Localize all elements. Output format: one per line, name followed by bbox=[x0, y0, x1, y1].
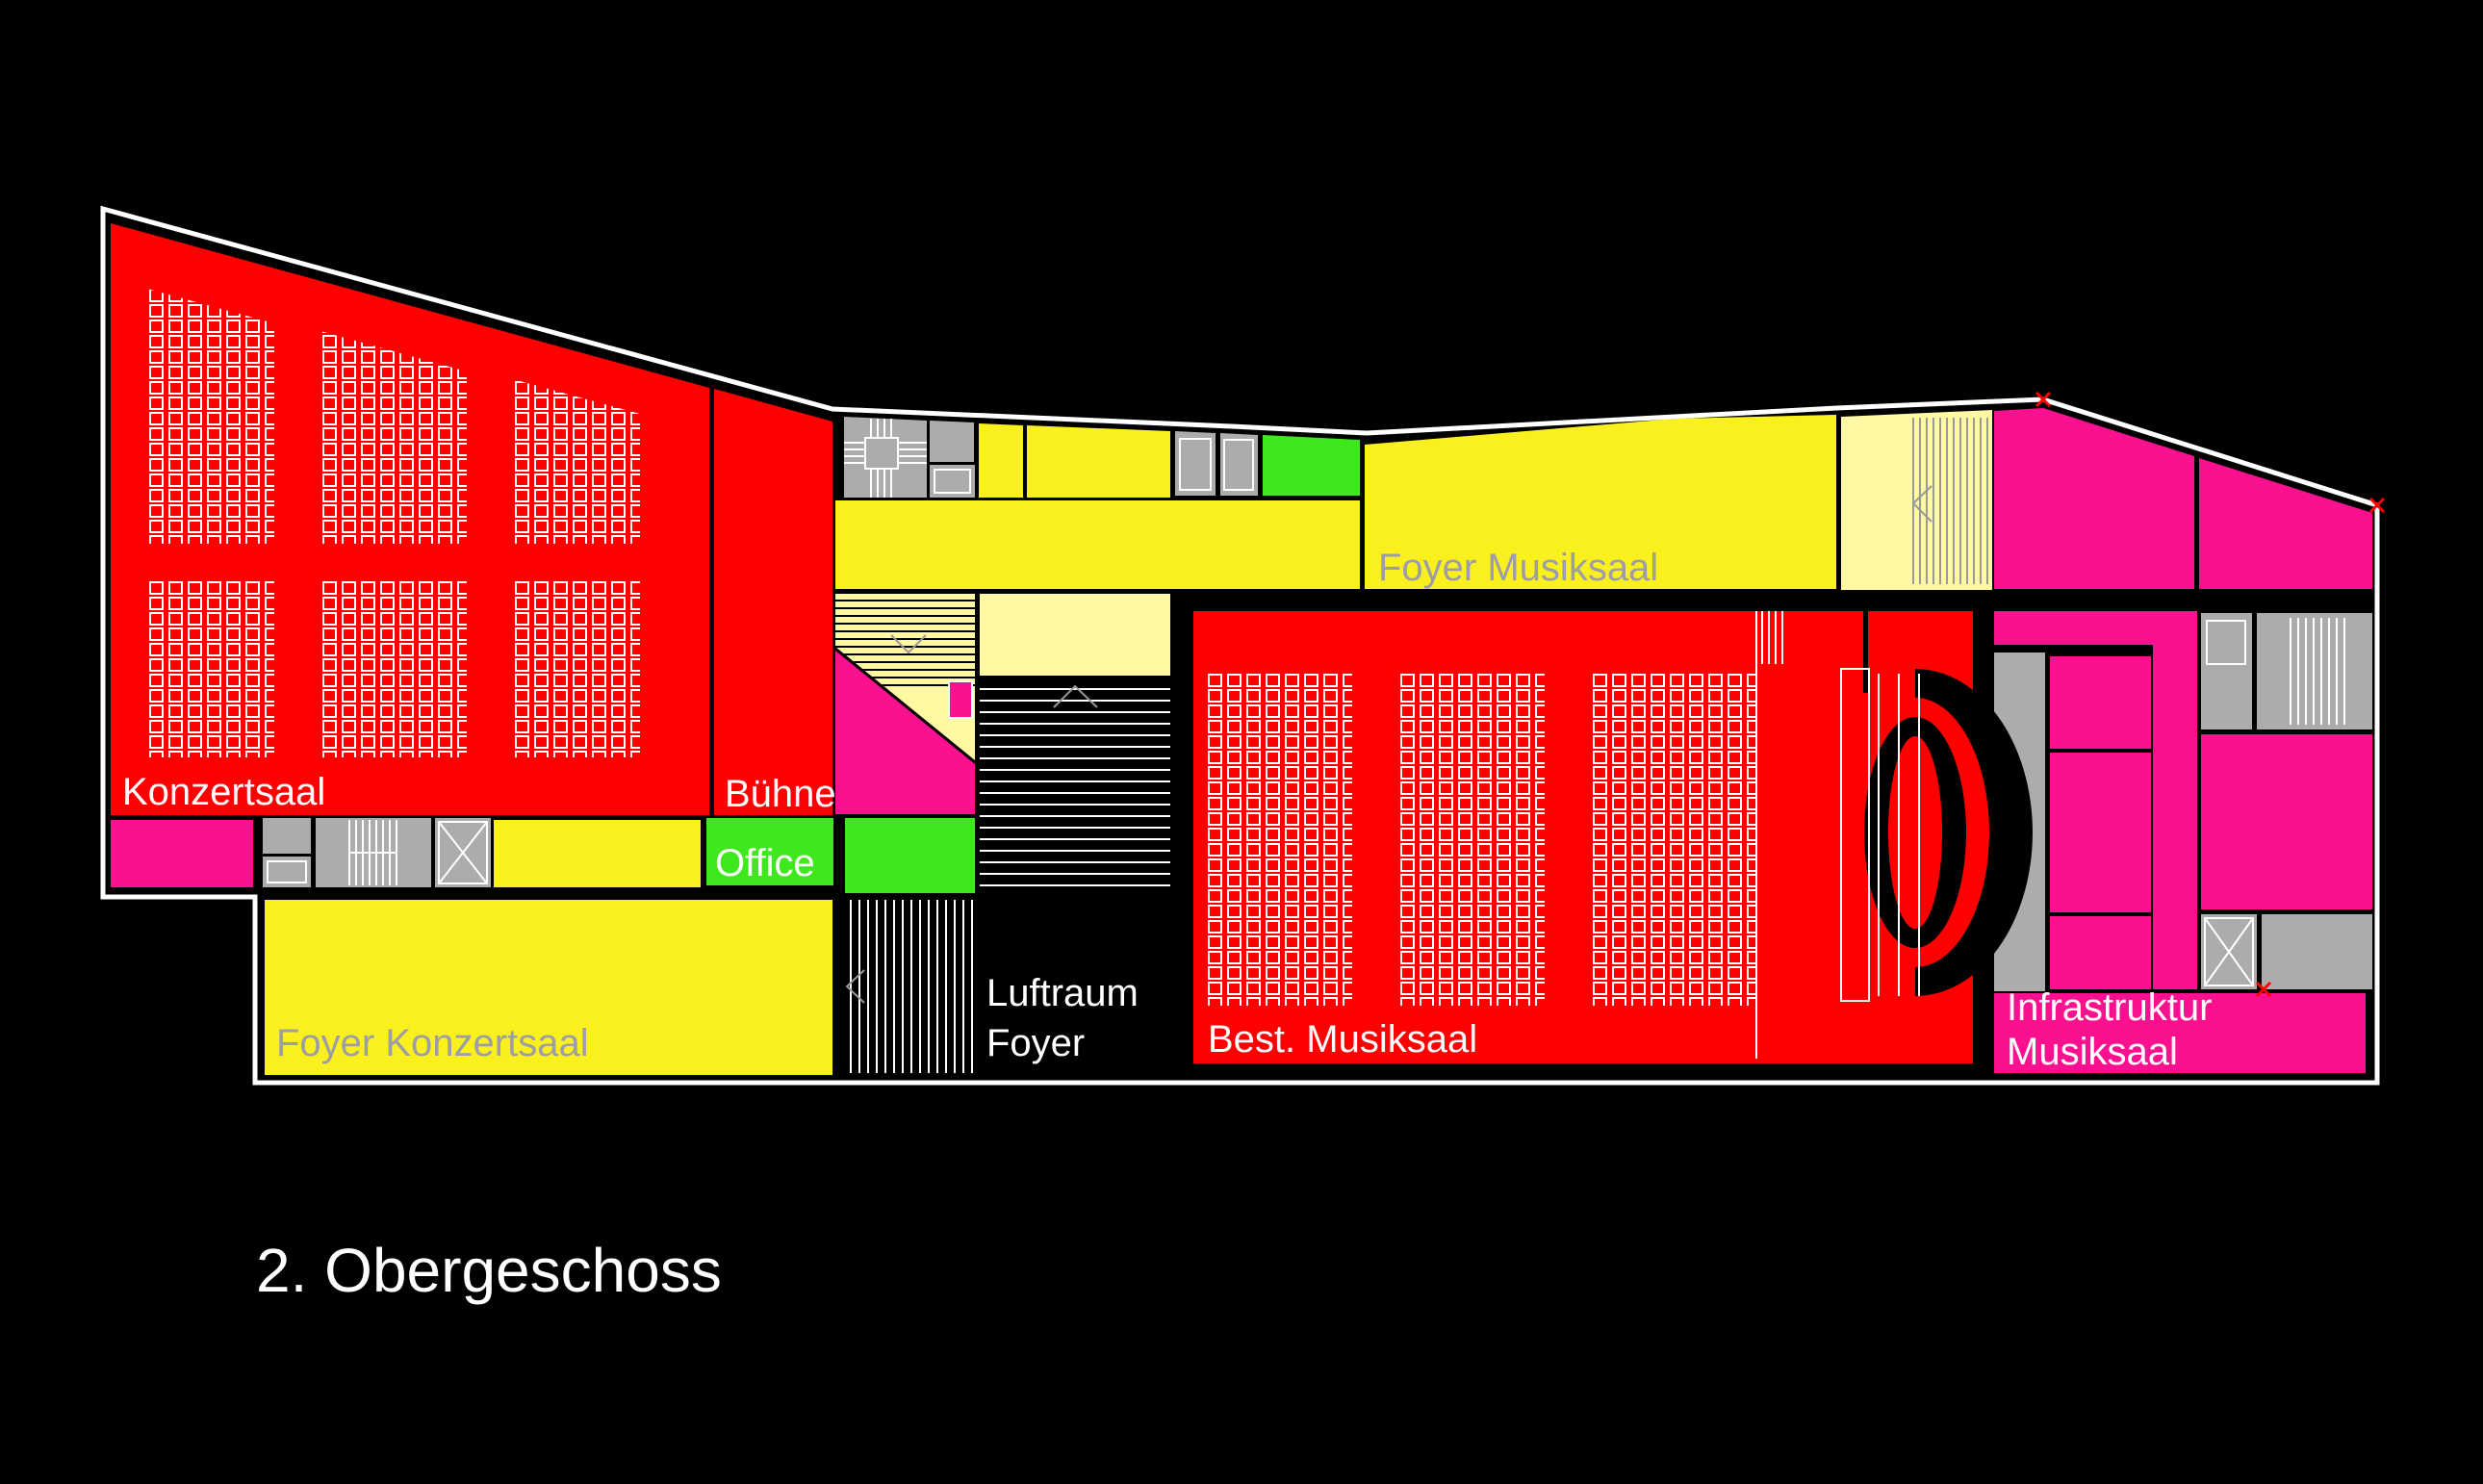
floorplan-svg: Konzertsaal Bühne Office bbox=[0, 0, 2483, 1484]
konzertsaal-room: Konzertsaal bbox=[111, 223, 709, 815]
foyer-konzertsaal-room: Foyer Konzertsaal bbox=[265, 900, 832, 1075]
floorplan-canvas: Konzertsaal Bühne Office bbox=[0, 0, 2483, 1484]
infrastruktur-label-2: Musiksaal bbox=[2007, 1031, 2178, 1073]
escalator-block bbox=[835, 594, 975, 893]
magenta-corridor bbox=[2153, 645, 2197, 989]
best-musiksaal-label: Best. Musiksaal bbox=[1208, 1018, 1477, 1061]
infrastruktur-wing: Infrastruktur Musiksaal bbox=[1994, 408, 2372, 1073]
foyer-konzertsaal-label: Foyer Konzertsaal bbox=[276, 1022, 589, 1064]
floor-title: 2. Obergeschoss bbox=[256, 1236, 722, 1305]
konzertsaal-seats bbox=[147, 289, 274, 544]
luftraum-label-2: Foyer bbox=[986, 1022, 1085, 1064]
yellow-room-a bbox=[979, 423, 1023, 498]
magenta-room-r2 bbox=[1994, 611, 2197, 645]
office-label: Office bbox=[715, 842, 815, 884]
yellow-room-strip bbox=[494, 820, 701, 887]
magenta-room-r1a bbox=[1994, 408, 2194, 589]
yellow-room-b bbox=[1027, 425, 1170, 498]
small-duct-room bbox=[949, 681, 972, 718]
magenta-room-small bbox=[111, 820, 253, 887]
green-room-1 bbox=[1263, 435, 1360, 496]
stairs-horizontal bbox=[980, 689, 1170, 885]
service-strip: Office bbox=[111, 818, 833, 887]
buehne-label: Bühne bbox=[725, 773, 836, 815]
musiksaal-seats bbox=[1206, 673, 1352, 1006]
gray-room-b1 bbox=[930, 421, 974, 462]
infrastruktur-label-1: Infrastruktur bbox=[2007, 986, 2212, 1029]
magenta-room-e bbox=[2201, 734, 2372, 909]
magenta-room-b bbox=[2050, 753, 2151, 912]
green-room-2 bbox=[845, 818, 975, 893]
foyer-musiksaal-label: Foyer Musiksaal bbox=[1378, 547, 1658, 589]
best-musiksaal-room: Best. Musiksaal bbox=[1193, 611, 2045, 1063]
pale-stair-strip bbox=[1841, 410, 1992, 590]
gray-room-a bbox=[263, 818, 311, 854]
gray-room-f bbox=[2262, 914, 2372, 989]
stairs-vertical bbox=[851, 900, 972, 1073]
gray-room-c1 bbox=[1175, 431, 1216, 496]
magenta-room-a bbox=[2050, 656, 2151, 749]
magenta-room-c bbox=[2050, 916, 2151, 989]
pale-room bbox=[980, 594, 1170, 676]
chevron-left-icon bbox=[847, 970, 864, 1003]
konzertsaal-label: Konzertsaal bbox=[122, 771, 325, 813]
buehne-room: Bühne bbox=[714, 389, 836, 815]
luftraum-label-1: Luftraum bbox=[986, 972, 1139, 1014]
foyer-musiksaal-west bbox=[835, 500, 1360, 589]
